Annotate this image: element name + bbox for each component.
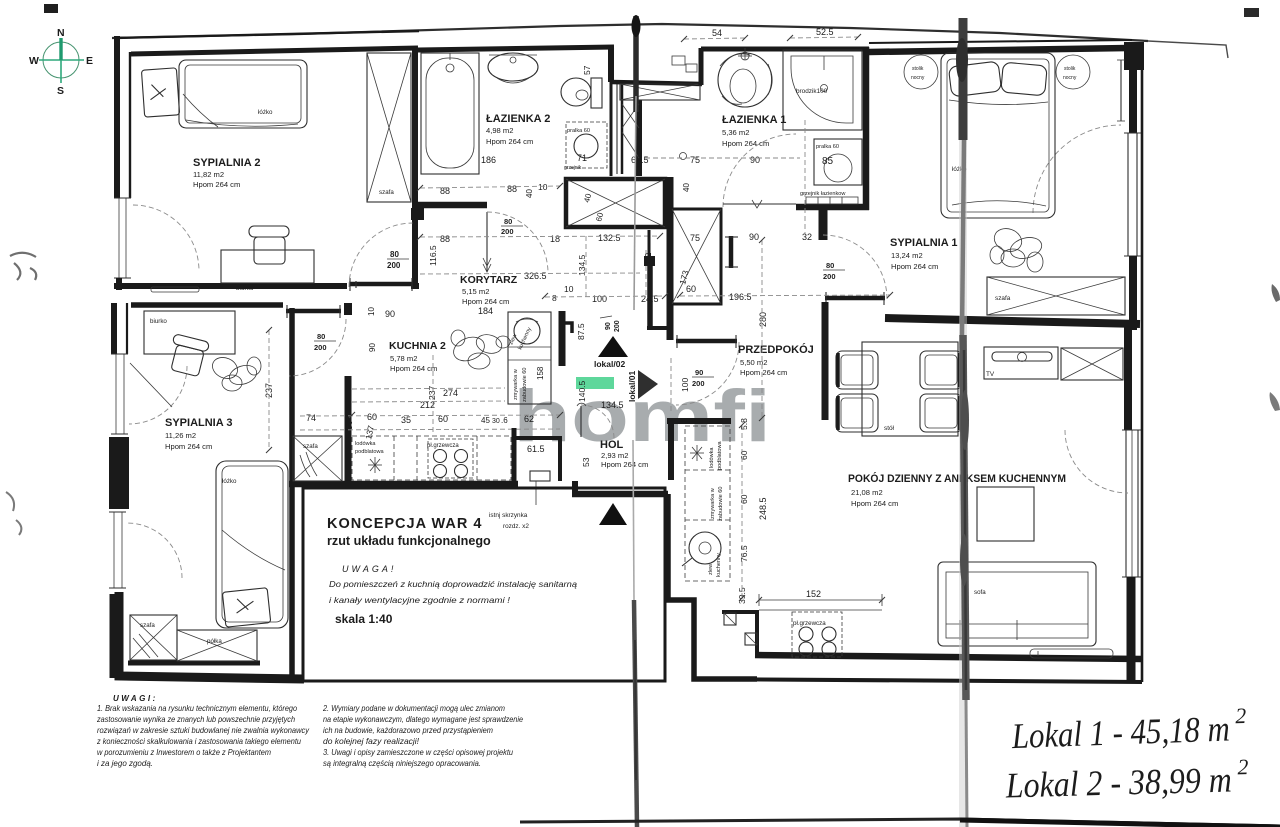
svg-text:lodówka: lodówka <box>709 447 715 468</box>
svg-text:N: N <box>57 27 65 39</box>
svg-text:184: 184 <box>478 306 493 316</box>
svg-text:90: 90 <box>368 343 377 352</box>
svg-text:podblatowa: podblatowa <box>355 449 385 455</box>
svg-text:152: 152 <box>806 589 821 599</box>
svg-text:Hpom 264 cm: Hpom 264 cm <box>740 368 787 377</box>
svg-text:pralka 60: pralka 60 <box>816 144 839 150</box>
svg-text:21,08 m2: 21,08 m2 <box>851 488 883 497</box>
svg-text:2. Wymiary podane w dokumentac: 2. Wymiary podane w dokumentacji mogą ul… <box>322 704 505 713</box>
svg-text:35: 35 <box>401 415 411 425</box>
svg-text:90: 90 <box>605 322 612 330</box>
svg-text:szafa: szafa <box>140 622 155 629</box>
svg-text:88: 88 <box>440 234 450 244</box>
svg-text:Hpom 264 cm: Hpom 264 cm <box>601 460 648 469</box>
svg-text:5,50 m2: 5,50 m2 <box>740 358 767 367</box>
svg-text:280: 280 <box>758 312 768 327</box>
svg-text:podblatowa: podblatowa <box>717 440 723 470</box>
svg-text:196.5: 196.5 <box>729 292 752 302</box>
svg-text:UWAGA!: UWAGA! <box>342 564 396 574</box>
svg-text:71: 71 <box>577 153 587 163</box>
svg-text:SYPIALNIA 2: SYPIALNIA 2 <box>193 157 260 169</box>
svg-text:5,15 m2: 5,15 m2 <box>462 287 489 296</box>
svg-text:PRZEDPOKÓJ: PRZEDPOKÓJ <box>738 343 814 356</box>
svg-text:grzejnik: grzejnik <box>564 165 582 171</box>
svg-text:80: 80 <box>826 261 834 270</box>
svg-text:Hpom 264 cm: Hpom 264 cm <box>193 180 240 189</box>
svg-text:skala 1:40: skala 1:40 <box>335 612 393 626</box>
svg-text:półka: półka <box>207 638 222 645</box>
svg-text:Hpom 264 cm: Hpom 264 cm <box>390 364 437 373</box>
svg-text:5,78 m2: 5,78 m2 <box>390 354 417 363</box>
svg-text:KUCHNIA 2: KUCHNIA 2 <box>389 340 446 352</box>
svg-text:biurko: biurko <box>236 285 254 292</box>
svg-text:do kolejnej fazy realizacji!: do kolejnej fazy realizacji! <box>323 737 420 746</box>
svg-text:lokal/02: lokal/02 <box>594 359 625 369</box>
svg-text:32: 32 <box>802 232 812 242</box>
svg-text:łóżko: łóżko <box>258 109 273 116</box>
svg-text:pralka 60: pralka 60 <box>567 128 590 134</box>
svg-text:zastosowanie wynika ze znanych: zastosowanie wynika ze znanych lub powsz… <box>96 715 295 724</box>
svg-text:237: 237 <box>427 386 437 400</box>
svg-text:i za jego zgodą.: i za jego zgodą. <box>97 759 153 768</box>
svg-text:10: 10 <box>367 307 376 316</box>
svg-text:60: 60 <box>367 412 377 422</box>
svg-text:10: 10 <box>538 182 548 192</box>
svg-text:ŁAZIENKA 1: ŁAZIENKA 1 <box>722 114 786 126</box>
svg-text:61.5: 61.5 <box>527 444 545 454</box>
svg-text:stolik: stolik <box>1064 66 1076 72</box>
svg-text:.6: .6 <box>501 416 508 425</box>
svg-text:w porozumieniu z Inwestorem o: w porozumieniu z Inwestorem o także z Pr… <box>97 748 271 757</box>
svg-text:Hpom 264 cm: Hpom 264 cm <box>722 139 769 148</box>
svg-text:W: W <box>29 55 39 67</box>
svg-text:60: 60 <box>739 494 749 504</box>
svg-text:KORYTARZ: KORYTARZ <box>460 274 518 286</box>
svg-text:łóżko: łóżko <box>222 478 237 485</box>
svg-text:75: 75 <box>690 155 700 165</box>
svg-text:248.5: 248.5 <box>758 497 768 520</box>
svg-text:90: 90 <box>695 368 703 377</box>
svg-text:200: 200 <box>614 320 621 332</box>
svg-text:rzut układu funkcjonalnego: rzut układu funkcjonalnego <box>327 534 491 548</box>
svg-text:szafa: szafa <box>303 443 318 450</box>
svg-text:76.5: 76.5 <box>739 545 749 562</box>
svg-text:są integralną częścią niniejsz: są integralną częścią niniejszego opraco… <box>323 759 481 768</box>
svg-text:1. Brak wskazania na rysunku t: 1. Brak wskazania na rysunku technicznym… <box>97 704 297 713</box>
svg-text:53: 53 <box>581 457 591 467</box>
svg-text:na etapie wykonawczym, dlatego: na etapie wykonawczym, dlatego wymagane … <box>323 715 523 724</box>
svg-text:60: 60 <box>739 450 749 460</box>
svg-text:87.5: 87.5 <box>576 323 586 340</box>
svg-text:istnj skrzynka: istnj skrzynka <box>489 512 528 519</box>
svg-text:30: 30 <box>492 418 500 425</box>
svg-text:sofa: sofa <box>974 589 986 596</box>
svg-text:74: 74 <box>306 413 316 423</box>
svg-text:biurko: biurko <box>150 318 167 325</box>
svg-text:ŁAZIENKA 2: ŁAZIENKA 2 <box>486 113 550 125</box>
svg-text:88: 88 <box>507 184 517 194</box>
svg-text:10: 10 <box>564 284 574 294</box>
svg-text:KONCEPCJA WAR 4: KONCEPCJA WAR 4 <box>327 516 482 532</box>
svg-text:4,98 m2: 4,98 m2 <box>486 126 513 135</box>
svg-text:zabudowie 60: zabudowie 60 <box>522 367 528 402</box>
svg-text:SYPIALNIA 1: SYPIALNIA 1 <box>890 237 957 249</box>
svg-text:Lokal 1 - 45,18 m: Lokal 1 - 45,18 m <box>1010 708 1230 756</box>
svg-text:85: 85 <box>822 156 834 167</box>
svg-text:60: 60 <box>686 284 696 294</box>
svg-text:132.5: 132.5 <box>598 233 621 243</box>
svg-text:zmywarka w: zmywarka w <box>513 368 519 400</box>
svg-text:S: S <box>57 85 64 97</box>
svg-text:40: 40 <box>682 183 691 192</box>
svg-text:lodówka: lodówka <box>355 441 376 447</box>
svg-text:stolik: stolik <box>912 66 924 72</box>
svg-text:13,24 m2: 13,24 m2 <box>891 251 923 260</box>
svg-text:80: 80 <box>390 250 399 259</box>
svg-text:134.5: 134.5 <box>577 254 587 276</box>
svg-text:158: 158 <box>536 366 545 380</box>
svg-text:ich na budowie, każdorazowo pr: ich na budowie, każdorazowo przed przyst… <box>323 726 493 735</box>
svg-text:80: 80 <box>317 332 325 341</box>
svg-text:TV: TV <box>986 371 995 378</box>
svg-text:18: 18 <box>550 234 560 244</box>
svg-text:200: 200 <box>501 227 514 236</box>
svg-text:200: 200 <box>692 379 705 388</box>
svg-text:274: 274 <box>443 388 458 398</box>
svg-text:5.8: 5.8 <box>739 418 749 430</box>
svg-text:11,26 m2: 11,26 m2 <box>165 431 196 440</box>
svg-text:zabudowie 60: zabudowie 60 <box>718 486 724 521</box>
svg-text:11,82 m2: 11,82 m2 <box>193 170 224 179</box>
svg-text:pł.grzewcza: pł.grzewcza <box>427 443 459 449</box>
svg-text:stół: stół <box>884 425 895 432</box>
svg-text:40: 40 <box>525 189 534 198</box>
svg-text:E: E <box>86 55 93 67</box>
svg-text:zlew: zlew <box>708 563 714 575</box>
svg-text:69.5: 69.5 <box>631 155 649 165</box>
svg-text:POKÓJ DZIENNY Z ANEKSEM KUCHEN: POKÓJ DZIENNY Z ANEKSEM KUCHENNYM <box>848 472 1066 485</box>
svg-text:zmywarka w: zmywarka w <box>710 487 716 519</box>
svg-text:Do pomieszczeń z kuchnią dopro: Do pomieszczeń z kuchnią doprowadzić ins… <box>329 579 577 589</box>
svg-text:116.5: 116.5 <box>428 245 438 266</box>
svg-text:nocny: nocny <box>911 75 925 81</box>
svg-text:3. Uwagi i opisy zamieszczone: 3. Uwagi i opisy zamieszczone w części o… <box>323 748 513 757</box>
svg-text:45: 45 <box>481 416 490 425</box>
svg-text:75: 75 <box>690 233 700 243</box>
svg-text:90: 90 <box>385 309 395 319</box>
svg-text:8: 8 <box>552 293 557 303</box>
svg-text:UWAGI:: UWAGI: <box>113 694 158 703</box>
svg-text:2: 2 <box>1235 703 1247 728</box>
svg-text:200: 200 <box>823 272 836 281</box>
svg-text:Lokal 2 - 38,99 m: Lokal 2 - 38,99 m <box>1004 760 1232 806</box>
svg-text:Hpom 264 cm: Hpom 264 cm <box>891 262 938 271</box>
svg-text:57: 57 <box>582 65 592 75</box>
svg-text:Hpom 264 cm: Hpom 264 cm <box>486 137 533 146</box>
svg-text:szafa: szafa <box>995 295 1011 302</box>
svg-text:100: 100 <box>680 378 690 392</box>
svg-text:80: 80 <box>504 217 512 226</box>
svg-text:140.5: 140.5 <box>577 380 587 402</box>
svg-text:2,93 m2: 2,93 m2 <box>601 451 628 460</box>
svg-text:nocny: nocny <box>1063 75 1077 81</box>
svg-text:HOL: HOL <box>600 439 624 451</box>
svg-text:rozdz. x2: rozdz. x2 <box>503 523 529 530</box>
svg-text:326.5: 326.5 <box>524 271 547 281</box>
svg-text:Hpom 264 cm: Hpom 264 cm <box>165 442 212 451</box>
svg-text:i kanały wentylacyjne zgodnie: i kanały wentylacyjne zgodnie z normami … <box>329 595 511 605</box>
svg-text:200: 200 <box>387 261 401 270</box>
svg-text:100: 100 <box>592 294 607 304</box>
svg-text:SYPIALNIA 3: SYPIALNIA 3 <box>165 417 232 429</box>
svg-text:186: 186 <box>481 155 496 165</box>
svg-text:90: 90 <box>750 155 760 165</box>
svg-text:86: 86 <box>344 420 354 430</box>
svg-text:brodzik100: brodzik100 <box>796 88 828 95</box>
svg-text:grzejnik łazienkow: grzejnik łazienkow <box>800 191 846 197</box>
svg-text:lokal/01: lokal/01 <box>627 371 637 402</box>
svg-text:Hpom 264 cm: Hpom 264 cm <box>851 499 898 508</box>
svg-text:rozwiązań w zakresie sztuki bu: rozwiązań w zakresie sztuki budowlanej n… <box>97 726 310 735</box>
svg-text:200: 200 <box>314 343 327 352</box>
svg-text:54: 54 <box>712 28 722 38</box>
svg-text:52.5: 52.5 <box>816 27 834 37</box>
svg-text:2: 2 <box>1237 754 1249 779</box>
svg-text:134.5: 134.5 <box>601 400 624 410</box>
svg-text:szafa: szafa <box>379 189 394 196</box>
svg-text:Hpom 264 cm: Hpom 264 cm <box>462 297 509 306</box>
svg-text:z konieczności skalkulowania i: z konieczności skalkulowania i zastosowa… <box>96 737 301 746</box>
svg-text:pł.grzewcza: pł.grzewcza <box>793 620 826 627</box>
svg-text:90: 90 <box>749 232 759 242</box>
svg-text:5,36 m2: 5,36 m2 <box>722 128 749 137</box>
